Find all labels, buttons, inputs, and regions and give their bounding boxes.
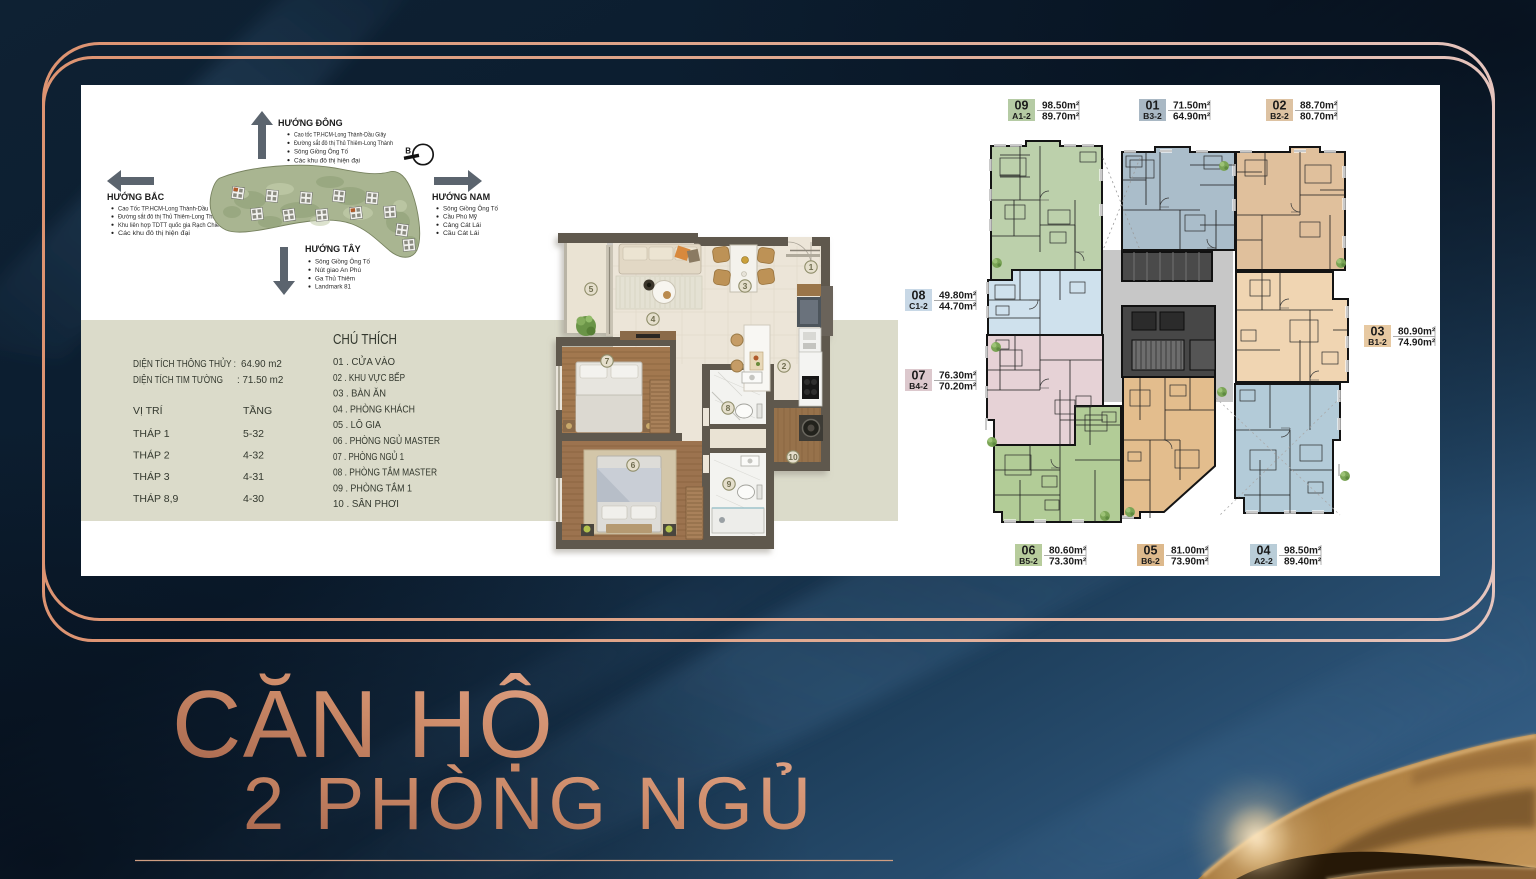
svg-text:9: 9: [727, 479, 732, 489]
svg-text:Ga Thủ Thiêm: Ga Thủ Thiêm: [315, 274, 355, 282]
svg-text:98.50m²: 98.50m²: [1042, 101, 1080, 112]
svg-text:02 . KHU VỰC BẾP: 02 . KHU VỰC BẾP: [333, 371, 405, 384]
svg-text:06 . PHÒNG NGỦ MASTER: 06 . PHÒNG NGỦ MASTER: [333, 434, 440, 447]
svg-text:09 . PHÒNG TẮM 1: 09 . PHÒNG TẮM 1: [333, 481, 412, 494]
svg-text:64.90m²: 64.90m²: [1173, 112, 1211, 123]
svg-text:Các khu đô thị hiện đại: Các khu đô thị hiện đại: [118, 230, 190, 237]
svg-text:DIỆN TÍCH THÔNG THỦY :: DIỆN TÍCH THÔNG THỦY :: [133, 358, 236, 370]
svg-text:74.90m²: 74.90m²: [1398, 338, 1436, 349]
svg-text:03 . BÀN ĂN: 03 . BÀN ĂN: [333, 387, 386, 400]
svg-text:Các khu đô thị hiện đại: Các khu đô thị hiện đại: [294, 157, 360, 164]
svg-text:71.50m²: 71.50m²: [1173, 101, 1211, 112]
svg-text:B: B: [405, 147, 411, 156]
svg-text:THÁP 1: THÁP 1: [133, 427, 170, 440]
svg-text:3: 3: [743, 281, 748, 291]
svg-text:80.90m²: 80.90m²: [1398, 327, 1436, 338]
svg-text:THÁP 3: THÁP 3: [133, 470, 170, 483]
svg-text:HƯỚNG ĐÔNG: HƯỚNG ĐÔNG: [278, 117, 343, 128]
svg-text:Sông Giồng Ông Tố: Sông Giồng Ông Tố: [443, 204, 498, 213]
svg-text:76.30m²: 76.30m²: [939, 371, 977, 382]
svg-text:Cao Tốc TP.HCM-Long Thành-Dầu: Cao Tốc TP.HCM-Long Thành-Dầu Giây: [118, 204, 223, 213]
svg-text:8: 8: [726, 403, 731, 413]
svg-text:HƯỚNG BẮC: HƯỚNG BẮC: [107, 191, 165, 202]
svg-text:Sông Giồng Ông Tố: Sông Giồng Ông Tố: [294, 147, 348, 156]
svg-text:2: 2: [782, 361, 787, 371]
svg-text:64.90 m2: 64.90 m2: [241, 359, 282, 370]
svg-text:73.90m²: 73.90m²: [1171, 557, 1209, 568]
svg-text:VỊ TRÍ: VỊ TRÍ: [133, 404, 163, 417]
svg-text:10 . SÂN PHƠI: 10 . SÂN PHƠI: [333, 497, 399, 510]
svg-text:5: 5: [589, 284, 594, 294]
svg-text:7: 7: [605, 356, 610, 366]
svg-text:CHÚ THÍCH: CHÚ THÍCH: [333, 331, 397, 348]
svg-text:1: 1: [809, 262, 814, 272]
svg-text:05 . LÔ GIA: 05 . LÔ GIA: [333, 418, 381, 431]
svg-text:A1-2: A1-2: [1012, 111, 1031, 121]
svg-text:THÁP 2: THÁP 2: [133, 449, 170, 462]
svg-text:B1-2: B1-2: [1368, 337, 1387, 347]
svg-text:89.40m²: 89.40m²: [1284, 557, 1322, 568]
svg-text:C1-2: C1-2: [909, 301, 928, 311]
svg-text:B5-2: B5-2: [1019, 556, 1038, 566]
svg-text:THÁP 8,9: THÁP 8,9: [133, 492, 178, 505]
svg-text:Đường sắt đô thị Thủ Thiêm-Lon: Đường sắt đô thị Thủ Thiêm-Long Thành: [118, 212, 222, 221]
svg-text:07 . PHÒNG NGỦ 1: 07 . PHÒNG NGỦ 1: [333, 450, 404, 463]
svg-text:Cầu Phú Mỹ: Cầu Phú Mỹ: [443, 212, 478, 221]
svg-text:89.70m²: 89.70m²: [1042, 112, 1080, 123]
svg-text:80.60m²: 80.60m²: [1049, 546, 1087, 557]
svg-text:81.00m²: 81.00m²: [1171, 546, 1209, 557]
svg-text:04 . PHÒNG KHÁCH: 04 . PHÒNG KHÁCH: [333, 402, 415, 415]
svg-text:A2-2: A2-2: [1254, 556, 1273, 566]
svg-text:10: 10: [788, 452, 798, 462]
svg-text:Nút giao An Phú: Nút giao An Phú: [315, 267, 361, 274]
svg-text:4: 4: [651, 314, 656, 324]
svg-text:B6-2: B6-2: [1141, 556, 1160, 566]
svg-text:DIỆN TÍCH TIM TƯỜNG: DIỆN TÍCH TIM TƯỜNG: [133, 375, 223, 386]
svg-text:73.30m²: 73.30m²: [1049, 557, 1087, 568]
svg-text:98.50m²: 98.50m²: [1284, 546, 1322, 557]
svg-text:08 . PHÒNG TẮM MASTER: 08 . PHÒNG TẮM MASTER: [333, 466, 437, 479]
svg-text:70.20m²: 70.20m²: [939, 382, 977, 393]
svg-text:6: 6: [631, 460, 636, 470]
svg-text:4-31: 4-31: [243, 471, 264, 483]
svg-text:Cảng Cát Lái: Cảng Cát Lái: [443, 222, 481, 229]
svg-text:Cao tốc TP.HCM-Long Thành-Dầu: Cao tốc TP.HCM-Long Thành-Dầu Giây: [294, 130, 387, 139]
svg-text:88.70m²: 88.70m²: [1300, 101, 1338, 112]
svg-text:80.70m²: 80.70m²: [1300, 112, 1338, 123]
svg-text:HƯỚNG NAM: HƯỚNG NAM: [432, 191, 490, 202]
svg-text:4-30: 4-30: [243, 493, 264, 505]
svg-text:Cầu Cát Lái: Cầu Cát Lái: [443, 228, 479, 237]
svg-text:TẦNG: TẦNG: [243, 404, 272, 417]
svg-text:B4-2: B4-2: [909, 381, 928, 391]
svg-text:4-32: 4-32: [243, 450, 264, 462]
svg-text:: 71.50 m2: : 71.50 m2: [237, 375, 283, 386]
svg-text:Landmark 81: Landmark 81: [315, 284, 351, 291]
svg-text:01 . CỬA VÀO: 01 . CỬA VÀO: [333, 355, 395, 368]
svg-text:B3-2: B3-2: [1143, 111, 1162, 121]
svg-text:HƯỚNG TÂY: HƯỚNG TÂY: [305, 243, 361, 254]
svg-text:49.80m²: 49.80m²: [939, 291, 977, 302]
svg-text:5-32: 5-32: [243, 428, 264, 440]
svg-text:Sông Giồng Ông Tố: Sông Giồng Ông Tố: [315, 257, 370, 266]
svg-text:44.70m²: 44.70m²: [939, 302, 977, 313]
svg-text:B2-2: B2-2: [1270, 111, 1289, 121]
svg-text:2 PHÒNG NGỦ: 2 PHÒNG NGỦ: [243, 762, 816, 845]
svg-text:Khu liên hợp TDTT quốc gia Rạc: Khu liên hợp TDTT quốc gia Rạch Chiếc: [118, 220, 223, 229]
svg-text:Đường sắt đô thị Thủ Thiêm-Lon: Đường sắt đô thị Thủ Thiêm-Long Thành: [294, 138, 393, 147]
